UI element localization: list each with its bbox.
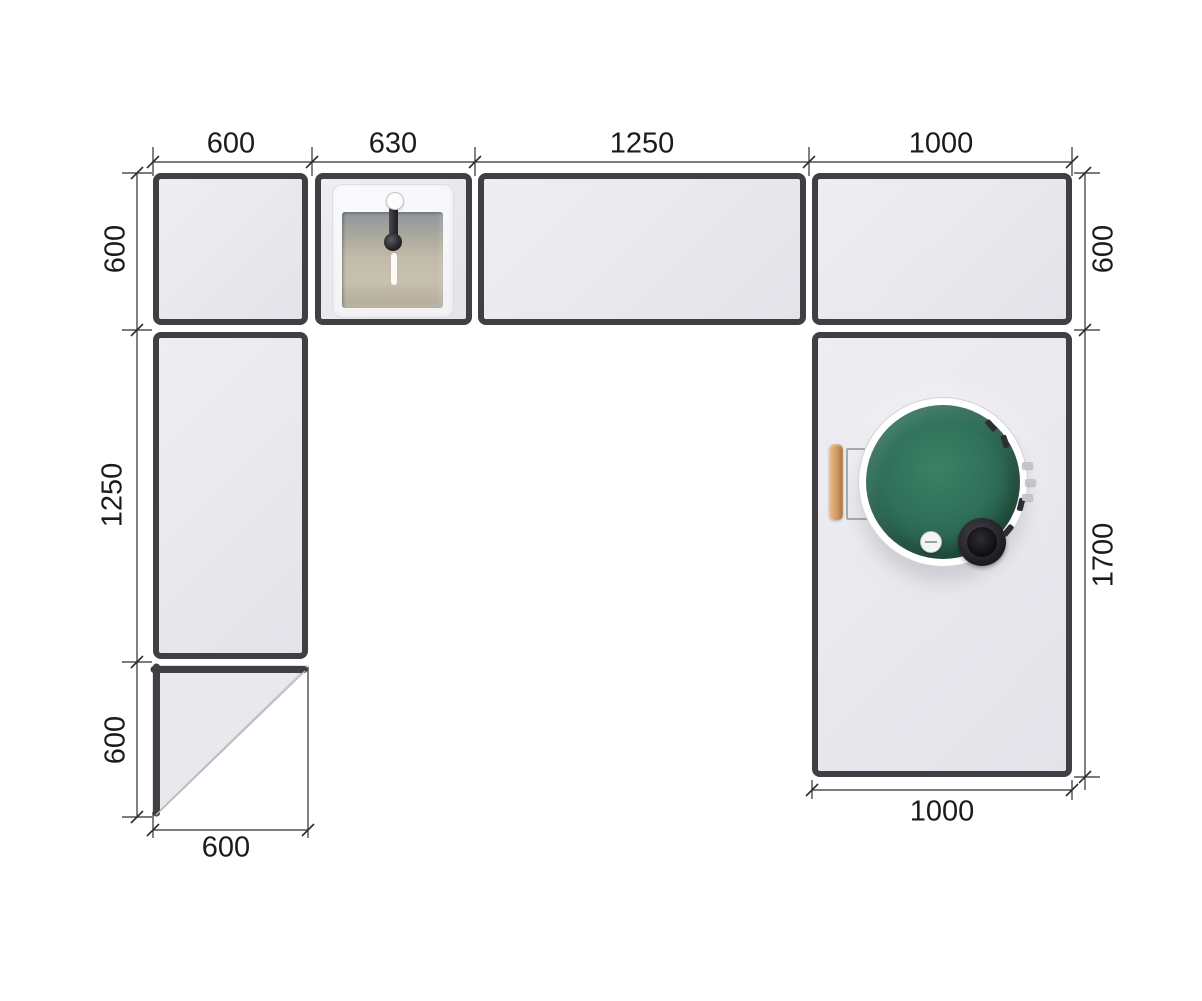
grill-vent-opening	[967, 527, 997, 557]
dim-top-1000: 1000	[909, 130, 974, 159]
grill-band-tab-3	[1022, 494, 1033, 501]
grill-band-tab-1	[1022, 462, 1033, 469]
dim-right-1700: 1700	[1090, 523, 1119, 588]
plan-canvas: 600 630 1250 1000 600 1250 600 600 1700 …	[0, 0, 1202, 1001]
grill-vent-knob	[958, 518, 1006, 566]
grill-band-tab-2	[1025, 479, 1036, 486]
grill-wood-handle	[829, 444, 843, 520]
dim-left-1250: 1250	[99, 463, 128, 528]
module-sink-630	[315, 173, 472, 325]
module-grill-1000x1700	[812, 332, 1072, 777]
dim-left-600-upper: 600	[102, 225, 131, 273]
dim-left-600-lower: 600	[102, 716, 131, 764]
module-left-1250	[153, 332, 308, 659]
module-top-left-600x600	[153, 173, 308, 325]
dim-top-1250: 1250	[610, 130, 675, 159]
dim-right-600: 600	[1090, 225, 1119, 273]
faucet-knob	[386, 192, 404, 210]
dim-top-600: 600	[207, 130, 255, 159]
module-top-right-1000x600	[812, 173, 1072, 325]
dim-bottom-right-1000: 1000	[910, 798, 975, 827]
dim-top-630: 630	[369, 130, 417, 159]
sink-drain	[384, 233, 402, 251]
module-top-1250	[478, 173, 806, 325]
corner-triangle-module	[153, 666, 308, 817]
grill-thermometer	[920, 531, 942, 553]
faucet-water-stripe	[391, 253, 397, 285]
dim-bottom-left-600: 600	[202, 834, 250, 863]
kamado-grill	[859, 398, 1027, 566]
